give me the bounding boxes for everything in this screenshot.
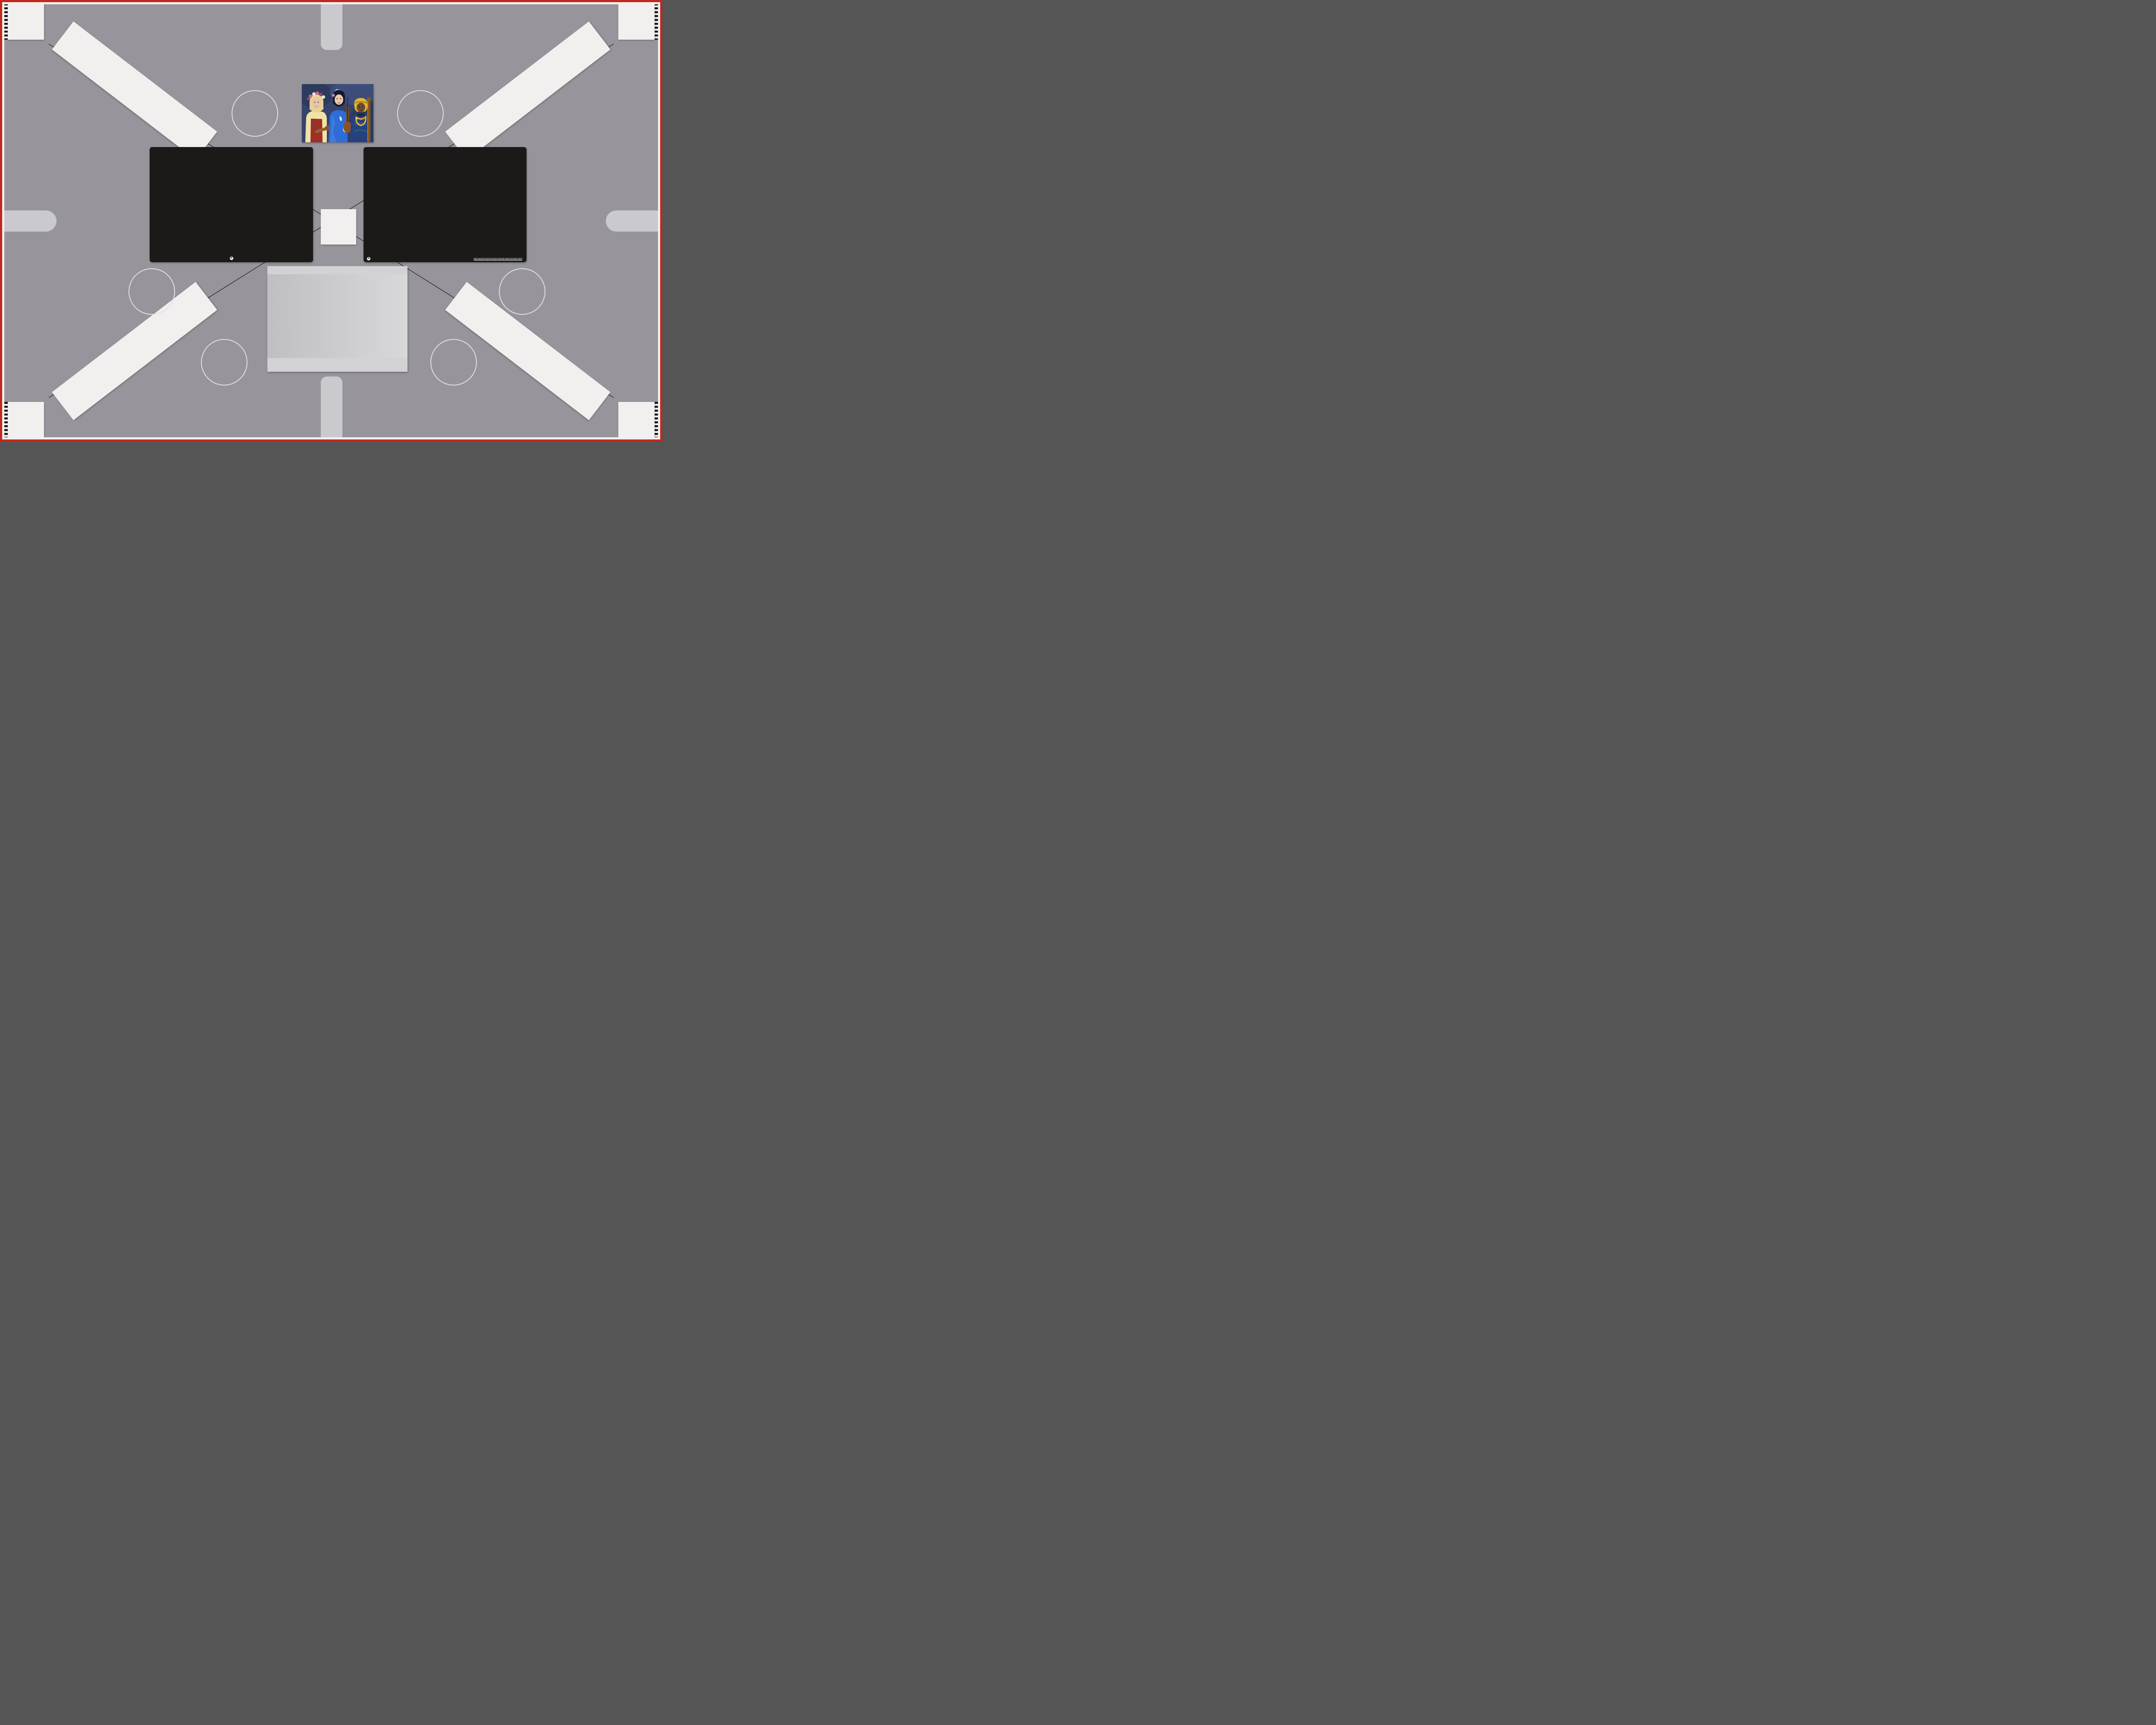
sg-ruler-ticks	[474, 258, 522, 260]
xrite-logo-icon: ✕	[367, 257, 370, 260]
siemens-star-magenta	[431, 340, 476, 385]
usaf-target-center	[321, 209, 356, 245]
grayscale-sweep-chart	[267, 266, 407, 372]
siemens-star-teal	[202, 340, 247, 385]
test-chart-canvas: ✕ ✕	[0, 0, 662, 442]
frequency-band-bottom	[267, 358, 407, 365]
colorchecker-label: ✕	[150, 256, 313, 260]
colorchecker-classic: ✕	[150, 147, 313, 262]
sg-ruler	[474, 258, 522, 260]
usaf-target-bottom-right	[618, 402, 655, 438]
musicians-photo	[302, 84, 373, 142]
corner-checker-strip	[4, 402, 8, 438]
grayscale-step-wedge	[267, 365, 407, 372]
corner-checker-strip	[4, 3, 8, 40]
siemens-star-blue	[500, 269, 545, 314]
frequency-band-top	[267, 266, 407, 274]
contrast-sweep-area	[267, 274, 407, 358]
xrite-logo-icon: ✕	[230, 257, 233, 260]
usaf-target-bottom-left	[8, 402, 44, 438]
sg-grid	[370, 154, 523, 251]
corner-checker-strip	[655, 3, 658, 40]
siemens-star-red	[232, 91, 277, 136]
sg-xrite-logo: ✕	[367, 257, 371, 260]
corner-checker-strip	[655, 402, 658, 438]
siemens-star-gold	[129, 269, 174, 314]
colorchecker-sg: ✕	[364, 147, 526, 262]
colorchecker-grid	[155, 152, 308, 251]
usaf-target-top-left	[8, 3, 44, 40]
musicians-photo-art	[302, 84, 373, 142]
usaf-target-top-right	[618, 3, 655, 40]
siemens-star-green	[398, 91, 443, 136]
